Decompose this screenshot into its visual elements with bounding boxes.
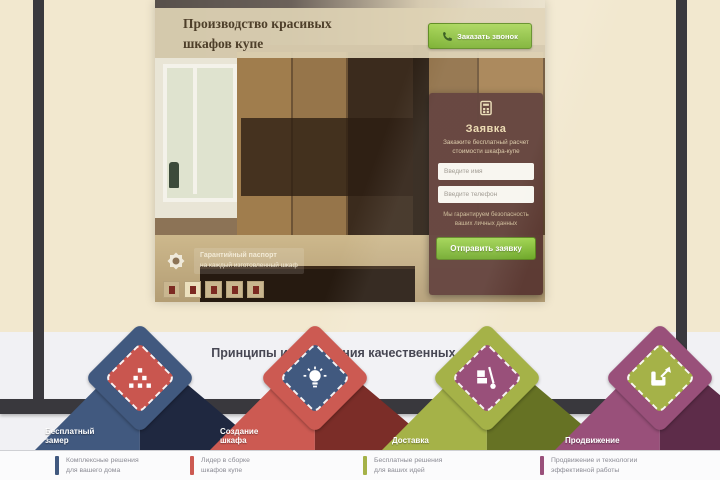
feature-line2: для ваших идей (374, 467, 425, 474)
step-label-line1: Продвижение (565, 436, 620, 445)
photo-window (155, 58, 237, 218)
hero-banner: Производство красивых шкафов купе Заказа… (155, 0, 545, 302)
pyramid-icon (128, 366, 152, 390)
form-subtitle-line1: Закажите бесплатный расчет (443, 139, 529, 146)
step-label: Доставка (392, 436, 429, 446)
step-label-line1: Создание (220, 427, 258, 436)
feature-item: Лидер в сборке шкафов купе (190, 456, 350, 478)
step-label: Продвижение (565, 436, 620, 446)
step-label-line1: Доставка (392, 436, 429, 445)
step-label-line1: Бесплатный (45, 427, 94, 436)
feature-bar (540, 456, 544, 475)
feature-text: Комплексные решения для вашего дома (66, 456, 139, 478)
call-button[interactable]: Заказать звонок (428, 23, 532, 49)
form-subtitle: Закажите бесплатный расчет стоимости шка… (429, 138, 543, 157)
guarantee-text: Гарантийный паспорт на каждый изготовлен… (194, 248, 304, 274)
feature-item: Продвижение и технологии эффективной раб… (540, 456, 700, 478)
lightbulb-icon (303, 366, 327, 390)
submit-button[interactable]: Отправить заявку (436, 237, 536, 260)
feature-text: Продвижение и технологии эффективной раб… (551, 456, 637, 478)
hero-title-line1: Производство красивых (183, 16, 332, 31)
material-swatches (163, 281, 264, 298)
material-swatch[interactable] (163, 281, 180, 298)
feature-line1: Продвижение и технологии (551, 457, 637, 464)
phone-input[interactable] (438, 186, 534, 203)
material-swatch[interactable] (205, 281, 222, 298)
wardrobe-dark-panel (241, 118, 427, 196)
step-diamond-inner (280, 343, 351, 414)
step-label-line2: замер (45, 436, 69, 445)
hero-title: Производство красивых шкафов купе (183, 14, 443, 53)
step-diamond-inner (452, 343, 523, 414)
form-subtitle-line2: стоимости шкафа-купе (452, 148, 519, 155)
feature-line1: Бесплатные решения (374, 457, 442, 464)
window-mullion (193, 64, 197, 194)
name-input[interactable] (438, 163, 534, 180)
hero-title-line2: шкафов купе (183, 36, 263, 51)
form-title: Заявка (429, 123, 543, 135)
hero-title-band: Производство красивых шкафов купе Заказа… (155, 8, 545, 58)
step-promotion: Продвижение (555, 318, 720, 450)
phone-icon (442, 31, 453, 42)
guarantee-badge: Гарантийный паспорт на каждый изготовлен… (165, 243, 365, 279)
step-label: Создание шкафа (220, 427, 258, 446)
feature-line2: эффективной работы (551, 467, 619, 474)
step-label-line2: шкафа (220, 436, 247, 445)
page: Производство красивых шкафов купе Заказа… (0, 0, 720, 480)
feature-line2: для вашего дома (66, 467, 120, 474)
material-swatch[interactable] (247, 281, 264, 298)
step-diamond-inner (105, 343, 176, 414)
feature-bar (363, 456, 367, 475)
guarantee-line1: Гарантийный паспорт (200, 252, 277, 259)
material-swatch-active[interactable] (184, 281, 201, 298)
feature-bar (190, 456, 194, 475)
lead-form: Заявка Закажите бесплатный расчет стоимо… (429, 93, 543, 295)
armchair-icon (648, 366, 672, 390)
step-diamond-inner (625, 343, 696, 414)
photo-shelf (413, 45, 429, 235)
form-note: Мы гарантируем безопасность ваших личных… (429, 211, 543, 230)
feature-line2: шкафов купе (201, 467, 242, 474)
step-label: Бесплатный замер (45, 427, 94, 446)
feature-line1: Комплексные решения (66, 457, 139, 464)
feature-text: Бесплатные решения для ваших идей (374, 456, 442, 478)
feature-bar (55, 456, 59, 475)
guarantee-line2: на каждый изготовленный шкаф (200, 262, 298, 269)
form-note-line1: Мы гарантируем безопасность (443, 212, 529, 218)
seal-icon (165, 250, 187, 272)
feature-item: Бесплатные решения для ваших идей (363, 456, 523, 478)
feature-text: Лидер в сборке шкафов купе (201, 456, 250, 478)
form-note-line2: ваших личных данных (455, 221, 517, 227)
window-vase (169, 162, 179, 188)
call-button-label: Заказать звонок (457, 32, 518, 41)
material-swatch[interactable] (226, 281, 243, 298)
handtruck-icon (475, 366, 499, 390)
feature-line1: Лидер в сборке (201, 457, 250, 464)
calculator-icon (478, 100, 494, 116)
